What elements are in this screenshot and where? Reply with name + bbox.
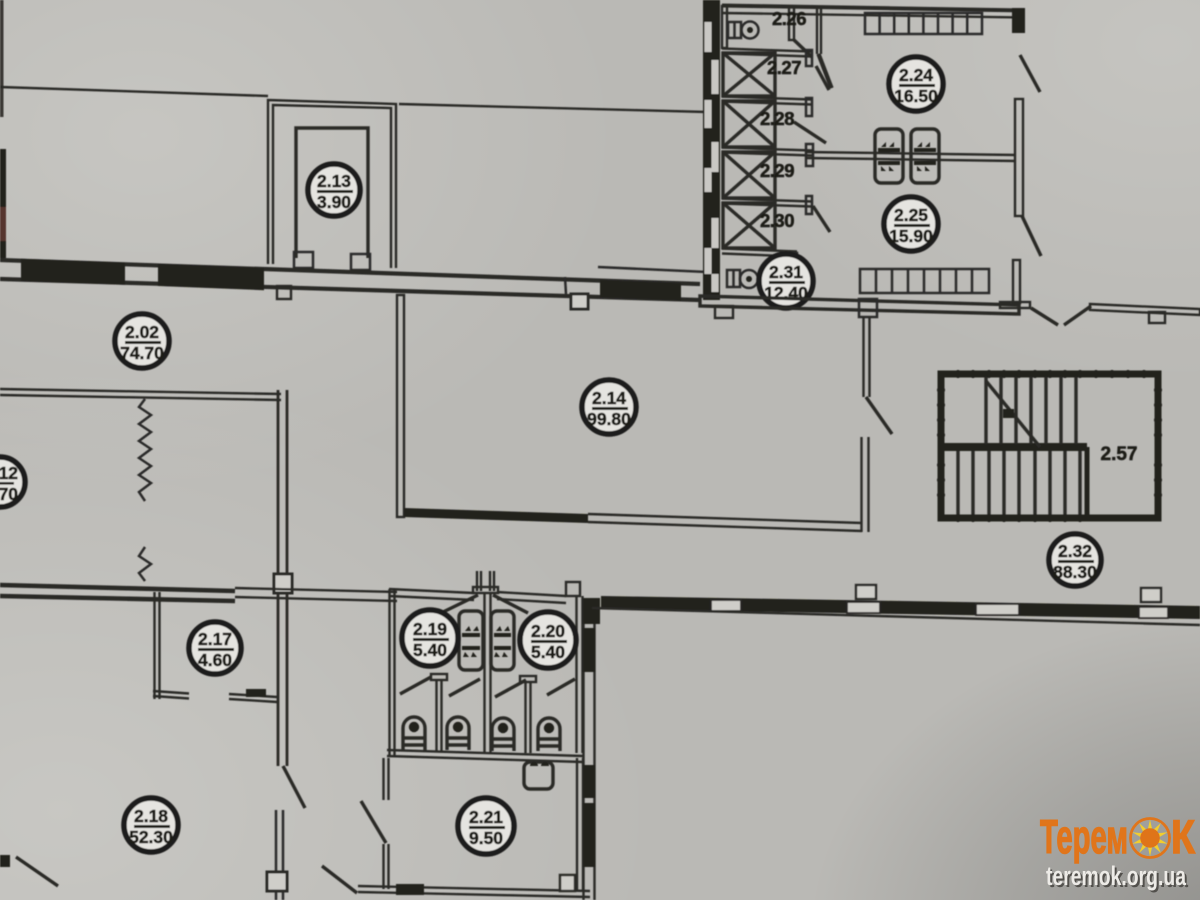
svg-text:2.26: 2.26 [772,8,806,29]
svg-text:2.17: 2.17 [198,629,232,649]
svg-text:2.30: 2.30 [760,210,794,231]
svg-text:2.18: 2.18 [134,806,168,826]
svg-text:2.24: 2.24 [899,65,933,85]
svg-text:74.70: 74.70 [120,343,164,363]
svg-text:4.60: 4.60 [198,650,232,670]
svg-text:2.20: 2.20 [531,621,565,641]
svg-text:2.13: 2.13 [317,171,351,191]
svg-text:9.50: 9.50 [469,828,503,848]
svg-text:2.31: 2.31 [769,262,803,282]
svg-text:2.02: 2.02 [125,322,159,342]
svg-text:3.90: 3.90 [317,192,351,212]
svg-text:99.80: 99.80 [587,409,631,429]
svg-text:Терем: Терем [1040,810,1128,863]
svg-text:16.50: 16.50 [894,86,938,106]
svg-text:К: К [1171,810,1195,863]
svg-text:52.30: 52.30 [129,827,173,847]
svg-text:2.28: 2.28 [760,108,794,129]
svg-text:4.70: 4.70 [0,484,18,504]
svg-text:2.12: 2.12 [0,463,18,483]
svg-text:teremok.org.ua: teremok.org.ua [1046,861,1187,891]
svg-text:2.25: 2.25 [894,205,928,225]
svg-text:15.90: 15.90 [889,226,933,246]
svg-text:2.19: 2.19 [413,619,447,639]
svg-text:2.57: 2.57 [1101,444,1138,465]
svg-text:2.21: 2.21 [469,807,503,827]
svg-text:88.30: 88.30 [1053,562,1097,582]
svg-text:2.14: 2.14 [592,388,626,408]
svg-text:2.29: 2.29 [760,160,794,181]
svg-text:5.40: 5.40 [531,642,565,662]
svg-text:5.40: 5.40 [413,640,447,660]
svg-text:2.27: 2.27 [767,57,801,78]
svg-text:2.32: 2.32 [1058,541,1092,561]
